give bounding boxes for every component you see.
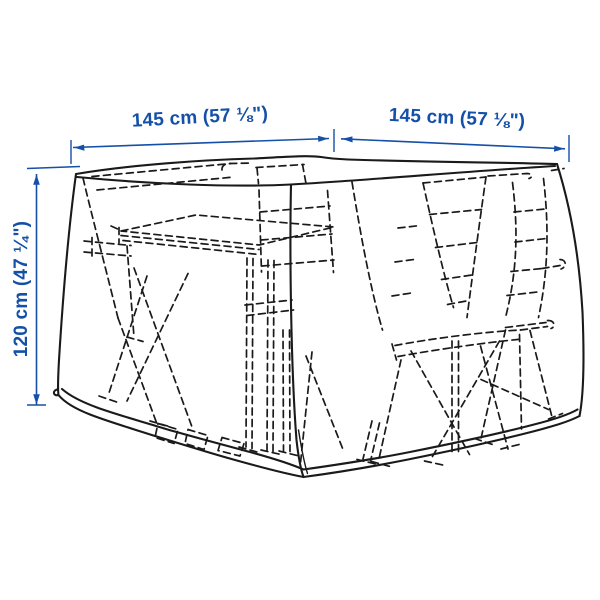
arrowhead-right-icon <box>554 146 565 152</box>
arrowhead-down-icon <box>33 394 40 404</box>
height-label: 120 cm (47 ¼") <box>10 189 34 389</box>
left-chair-sketch <box>83 164 234 428</box>
right-chair-sketch <box>352 174 554 468</box>
arrowhead-right-icon <box>318 136 329 142</box>
product-dimension-image: 145 cm (57 ⅛") 145 cm (57 ⅛") 120 cm (47… <box>0 0 600 600</box>
arrowhead-up-icon <box>33 175 40 185</box>
cover-outline <box>54 156 584 477</box>
arrowhead-left-icon <box>74 145 85 151</box>
far-right-chair-sketch <box>475 169 566 445</box>
furniture-cover-line-art <box>0 0 600 600</box>
table-sketch <box>111 215 334 455</box>
